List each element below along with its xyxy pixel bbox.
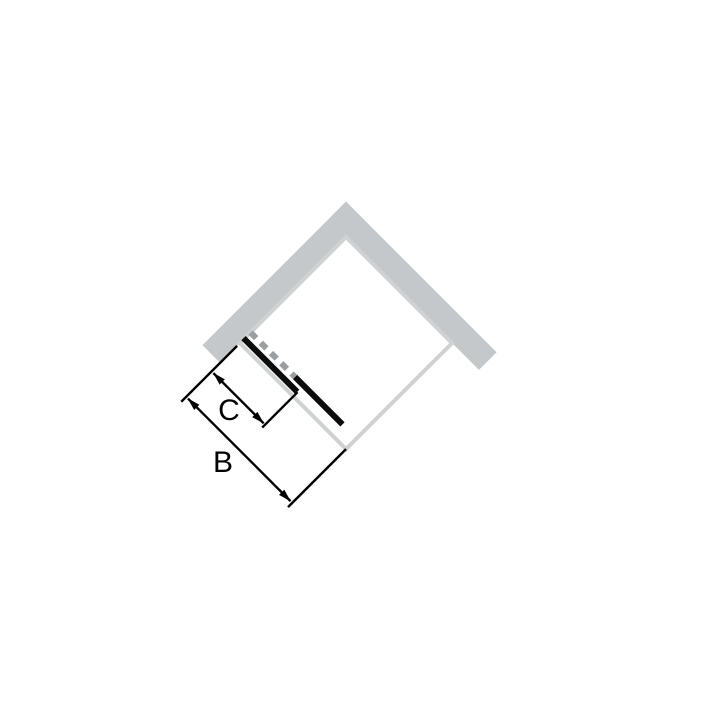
diagram-stage: C B	[0, 0, 720, 720]
dimension-label-c: C	[218, 394, 240, 427]
diagram-background	[0, 0, 720, 720]
dimension-label-b: B	[213, 446, 233, 479]
shower-enclosure-diagram: C B	[0, 0, 720, 720]
